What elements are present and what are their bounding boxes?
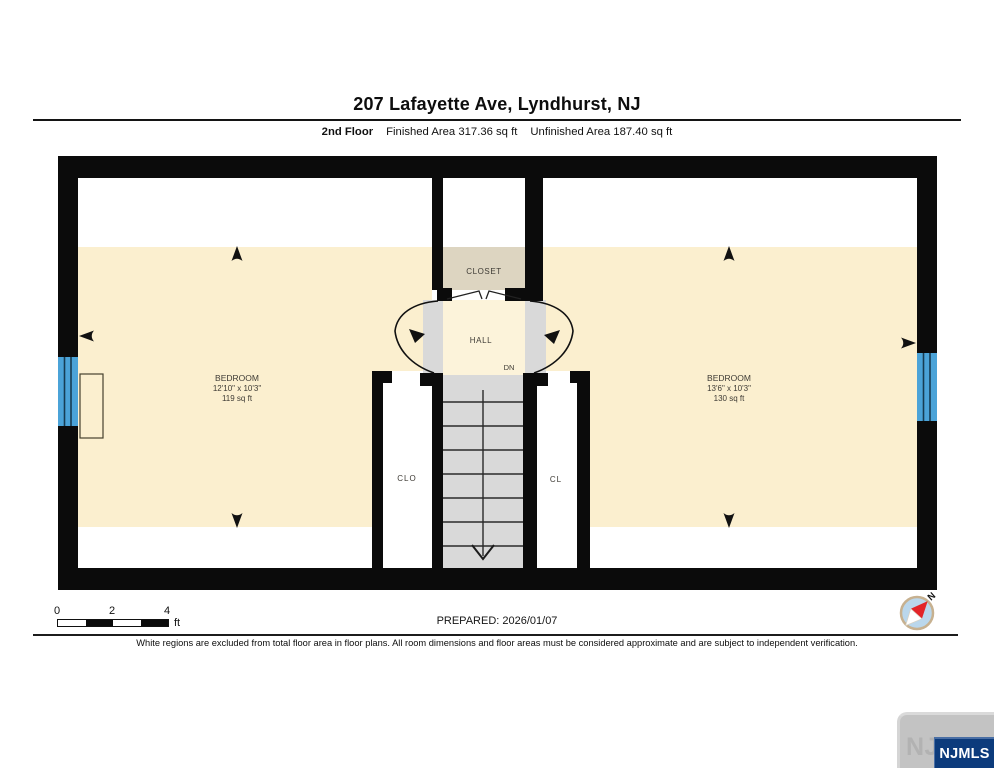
bedroom-right-area: 130 sq ft — [714, 394, 745, 403]
bedroom-right-name: BEDROOM — [707, 373, 751, 383]
window-left — [58, 357, 78, 426]
furniture-outline — [80, 374, 103, 438]
window-right — [917, 353, 937, 421]
footer-divider — [33, 634, 958, 636]
closet-left-label: CLO — [397, 474, 416, 483]
bedroom-left-dimensions: 12'10" x 10'3" — [213, 384, 261, 393]
disclaimer-text: White regions are excluded from total fl… — [0, 638, 994, 648]
njmls-badge-text: NJMLS — [939, 746, 989, 762]
floorplan-page: 207 Lafayette Ave, Lyndhurst, NJ 2nd Flo… — [0, 0, 994, 768]
floor-plan-drawing: CLOSET HALL DN CLO CL BEDROOM 12'10" x 1… — [0, 0, 994, 768]
bedroom-left-name: BEDROOM — [215, 373, 259, 383]
closet-label: CLOSET — [466, 267, 502, 276]
prepared-date: PREPARED: 2026/01/07 — [0, 615, 994, 627]
closet-right-label: CL — [550, 475, 562, 484]
stairs-dn-label: DN — [504, 363, 515, 372]
hall-label: HALL — [470, 336, 492, 345]
bedroom-right-dimensions: 13'6" x 10'3" — [707, 384, 751, 393]
njmls-logo-badge: NJMLS — [934, 737, 994, 768]
bedroom-left-area: 119 sq ft — [222, 394, 253, 403]
